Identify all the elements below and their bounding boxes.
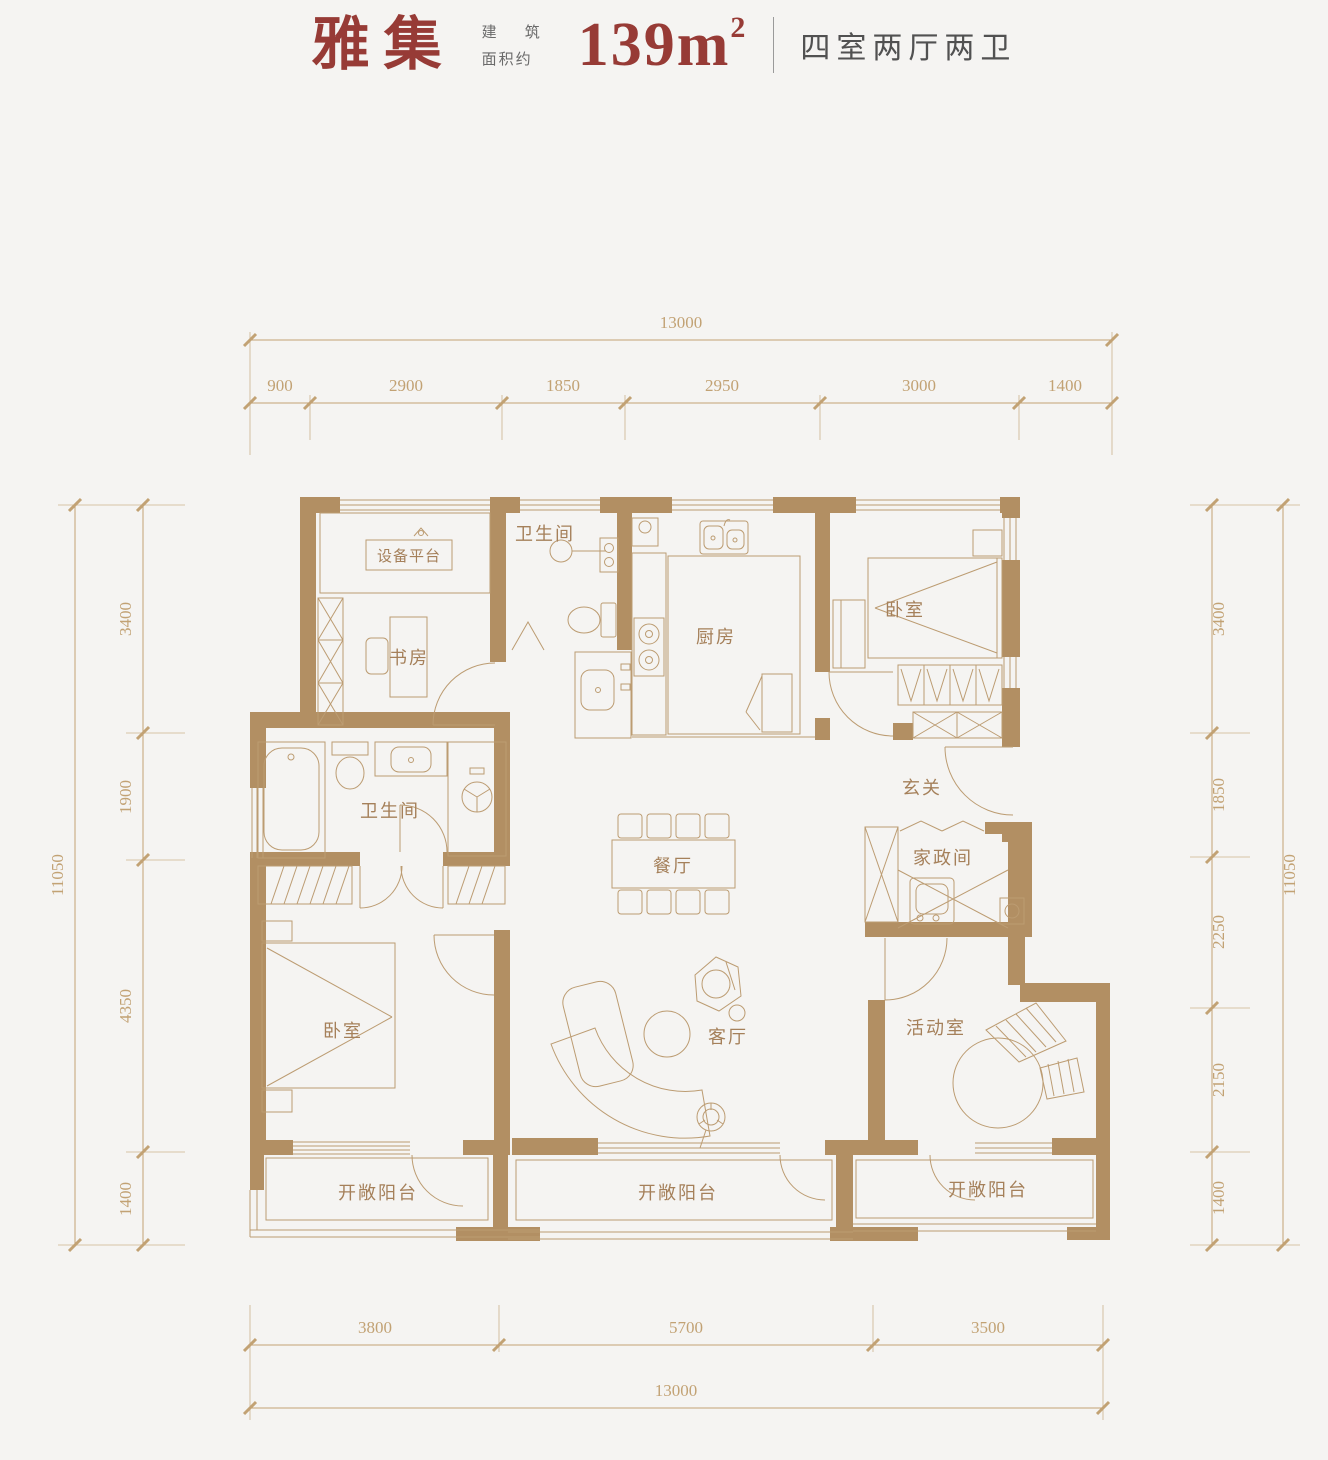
utility-folding-door <box>900 821 984 831</box>
bed-top-icon <box>833 530 1002 668</box>
dim-left-total: 11050 <box>48 854 67 896</box>
floor-plan-drawing: 13000 900 2900 1850 2950 3000 1400 <box>0 0 1328 1460</box>
furniture <box>258 513 1084 1148</box>
room-label-bath-main: 卫生间 <box>360 801 420 821</box>
dim-right-seg: 1400 <box>1209 1181 1228 1215</box>
room-label-kitchen: 厨房 <box>696 627 736 647</box>
double-swing-doors <box>360 866 443 908</box>
dim-top-seg: 2900 <box>389 376 423 395</box>
dim-bottom-seg: 3500 <box>971 1318 1005 1337</box>
dim-top-seg: 3000 <box>902 376 936 395</box>
dim-top-seg: 1850 <box>546 376 580 395</box>
dim-bottom-seg: 5700 <box>669 1318 703 1337</box>
plant-icon <box>695 957 745 1021</box>
dim-left-seg: 3400 <box>116 602 135 636</box>
activity-door-arc <box>885 938 947 1000</box>
dimension-top: 13000 900 2900 1850 2950 3000 1400 <box>244 313 1118 455</box>
closet-top-icon <box>913 712 1002 738</box>
dim-top-seg: 2950 <box>705 376 739 395</box>
fan-icon <box>697 1103 725 1148</box>
room-label-study: 书房 <box>389 648 429 668</box>
room-label-equipment-platform: 设备平台 <box>377 548 441 565</box>
windows <box>252 500 1052 1154</box>
dim-top-seg: 900 <box>267 376 293 395</box>
dim-bottom-seg: 3800 <box>358 1318 392 1337</box>
room-label-bedroom-main: 卧室 <box>323 1021 363 1041</box>
room-label-entry: 玄关 <box>902 778 942 798</box>
entry-door-arc <box>945 747 1013 815</box>
dim-right-total: 11050 <box>1280 854 1299 896</box>
coffee-table-icon <box>644 1011 690 1057</box>
bath-top-folding-door <box>512 622 544 650</box>
dimension-left: 11050 3400 1900 4350 1400 <box>48 499 185 1251</box>
dimension-bottom: 3800 5700 3500 13000 <box>244 1305 1109 1420</box>
sofa-icon <box>551 978 710 1138</box>
wardrobe-main-icon <box>258 866 505 904</box>
balcony-left-door-arc <box>412 1155 463 1206</box>
study-closet <box>318 598 343 725</box>
dim-left-seg: 1900 <box>116 780 135 814</box>
bath-main-fixtures <box>258 742 506 858</box>
bedroom-main-door-arc <box>434 935 494 995</box>
bedroom-top-door-arc <box>829 672 893 736</box>
dimension-right: 3400 1850 2250 2150 1400 11050 <box>1190 499 1300 1251</box>
room-label-dining: 餐厅 <box>653 856 693 876</box>
room-label-balcony-middle: 开敞阳台 <box>638 1183 718 1203</box>
balcony-middle-door-arc <box>780 1155 825 1200</box>
dim-right-seg: 2150 <box>1209 1063 1228 1097</box>
dim-top-total: 13000 <box>660 313 703 332</box>
dim-left-seg: 1400 <box>116 1182 135 1216</box>
room-label-bath-top: 卫生间 <box>515 524 575 544</box>
dim-bottom-total: 13000 <box>655 1381 698 1400</box>
floor-plan-page: 雅集 建 筑 面积约 139m2 四室两厅两卫 13000 <box>0 0 1328 1460</box>
wardrobe-top-icon <box>898 665 1002 705</box>
room-label-utility: 家政间 <box>913 848 973 868</box>
room-label-living: 客厅 <box>708 1027 748 1047</box>
dim-right-seg: 3400 <box>1209 602 1228 636</box>
bed-main-icon <box>262 921 395 1112</box>
play-tent-icon <box>953 1003 1084 1128</box>
dim-left-seg: 4350 <box>116 989 135 1023</box>
utility-fixtures <box>865 827 1024 928</box>
dim-top-seg: 1400 <box>1048 376 1082 395</box>
room-label-bedroom-top: 卧室 <box>885 600 925 620</box>
room-label-balcony-left: 开敞阳台 <box>338 1183 418 1203</box>
room-label-balcony-right: 开敞阳台 <box>948 1180 1028 1200</box>
room-label-activity: 活动室 <box>906 1018 966 1038</box>
dim-right-seg: 2250 <box>1209 915 1228 949</box>
dim-right-seg: 1850 <box>1209 778 1228 812</box>
